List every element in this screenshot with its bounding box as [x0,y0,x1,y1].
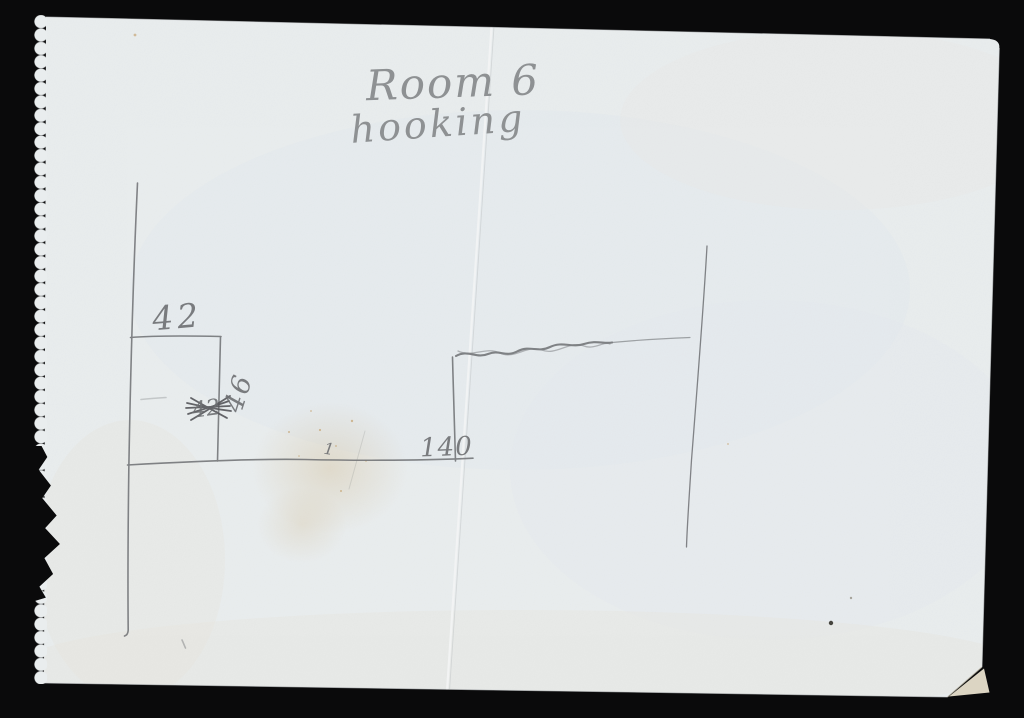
label-top-width: 42 [150,295,204,338]
label-bottom-length: 140 [420,432,474,464]
label-crossed-out: 42 [190,395,222,424]
handwriting-heading: Room 6 hooking [349,55,541,152]
scan-canvas: Room 6 hooking 42 42 46 140 1 [0,0,1024,718]
faint-speck [850,597,852,599]
scanned-note-photo: Room 6 hooking 42 42 46 140 1 [0,0,1024,718]
dark-speck [829,621,833,625]
